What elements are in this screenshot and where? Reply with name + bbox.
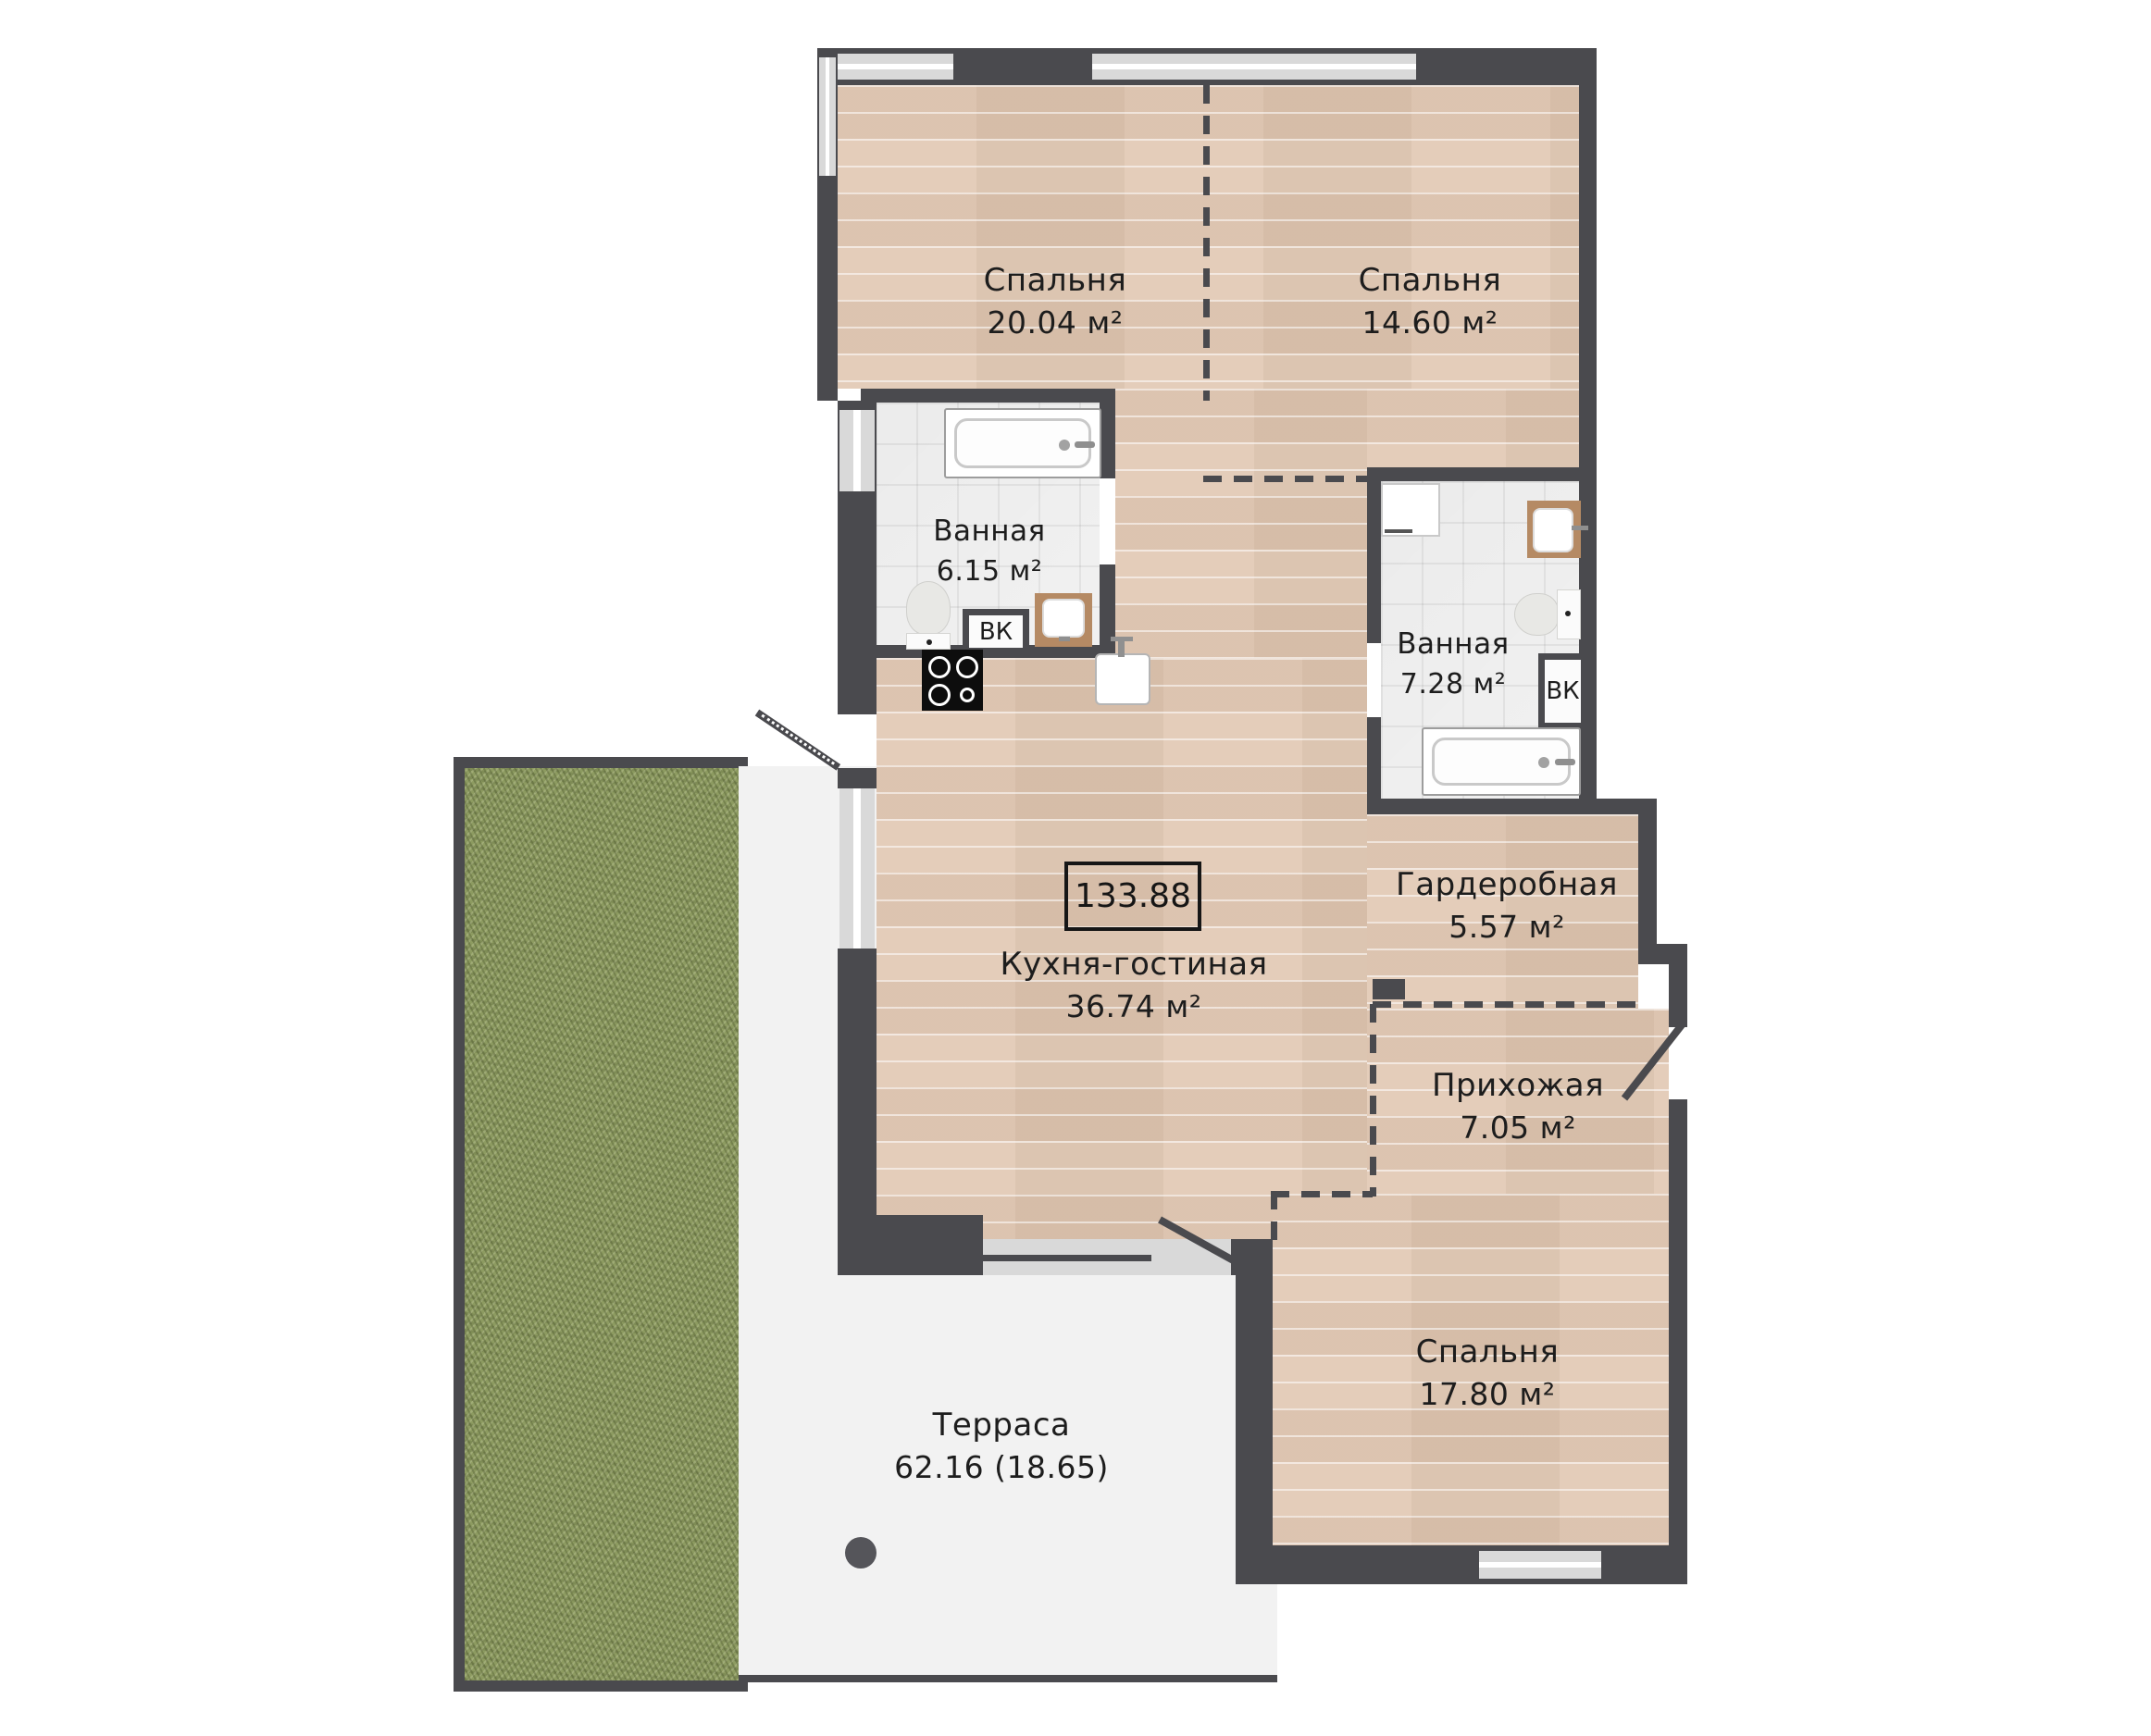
door-leaf-terrace-west <box>755 710 840 771</box>
window-bedroom3-bottom <box>1479 1551 1601 1579</box>
terrace-edge-line <box>739 1675 1277 1682</box>
wall-bathroom1-right-a <box>1100 403 1115 478</box>
room-area: 62.16 (18.65) <box>863 1450 1140 1486</box>
dashed-partition-bedroom2-kitchen <box>1203 476 1367 482</box>
floor-bedroom2-lower <box>1367 389 1579 467</box>
total-area-value: 133.88 <box>1075 877 1191 915</box>
room-area: 7.05 м² <box>1379 1110 1657 1147</box>
grass-border-bottom <box>454 1680 748 1692</box>
window-bedroom1-left <box>819 57 836 176</box>
wall-bedroom3-bottom <box>1236 1545 1687 1584</box>
burner-icon <box>956 656 978 678</box>
burner-icon <box>928 684 951 706</box>
window-kitchen-left <box>839 788 875 949</box>
floor-plan: ВК ВК 133.88 Спальня 20.04 м² Спальня 14 <box>0 0 2151 1736</box>
bathtub-2 <box>1422 727 1581 796</box>
bathtub-2-basin <box>1432 738 1571 786</box>
wall-exterior-right-upper <box>1579 48 1597 814</box>
bathtub-1-basin <box>954 418 1091 468</box>
room-label-bedroom1: Спальня 20.04 м² <box>916 262 1194 341</box>
kitchen-sink-faucet <box>1118 640 1125 657</box>
wall-bathroom2-bottom <box>1367 799 1657 814</box>
bathtub-2-drain <box>1538 757 1549 768</box>
room-label-kitchen-living: Кухня-гостиная 36.74 м² <box>949 946 1319 1025</box>
room-name: Ванная <box>1337 627 1569 662</box>
room-area: 36.74 м² <box>949 989 1319 1025</box>
room-label-bathroom2: Ванная 7.28 м² <box>1337 627 1569 701</box>
stove-hob <box>922 650 983 711</box>
dashed-partition-wardrobe-hallway <box>1373 1001 1638 1008</box>
wall-hallway-right-upper <box>1669 962 1687 1027</box>
wall-exterior-left-kitchen-c <box>838 949 877 1217</box>
room-label-terrace: Терраса 62.16 (18.65) <box>863 1407 1140 1486</box>
room-area: 6.15 м² <box>874 555 1105 588</box>
dashed-partition-kitchen-bedroom3-v <box>1271 1191 1277 1242</box>
bathtub-2-faucet <box>1555 759 1575 765</box>
wall-corner-southwest <box>838 1215 983 1275</box>
room-label-bedroom3: Спальня 17.80 м² <box>1349 1333 1626 1413</box>
toilet-1-bowl <box>906 581 951 635</box>
room-area: 14.60 м² <box>1291 305 1569 341</box>
wall-exterior-left-kitchen-b <box>838 768 877 788</box>
dashed-partition-bedrooms <box>1203 85 1210 401</box>
dashed-partition-kitchen-bedroom3-h <box>1271 1191 1373 1197</box>
vanity-2-faucet <box>1572 526 1588 530</box>
burner-icon <box>928 656 951 678</box>
vanity-2-sink <box>1533 508 1573 552</box>
vanity-1-sink <box>1042 599 1085 638</box>
room-name: Спальня <box>916 262 1194 299</box>
glass-door-frame-line <box>983 1255 1151 1261</box>
utility-shaft-1-label: ВК <box>979 618 1013 646</box>
grass-border-top <box>454 757 748 768</box>
kitchen-sink-faucet-handle <box>1111 637 1133 641</box>
room-label-bathroom1: Ванная 6.15 м² <box>874 515 1105 588</box>
window-bathroom1-left <box>839 410 875 491</box>
dashed-partition-kitchen-hallway <box>1370 1004 1376 1197</box>
toilet-1-button <box>926 639 932 645</box>
terrace-column <box>845 1537 877 1569</box>
wall-hallway-right-lower <box>1669 1099 1687 1545</box>
wall-bathroom1-top <box>861 389 1115 403</box>
window-bedroom2-top <box>1092 54 1416 80</box>
burner-icon <box>960 688 975 702</box>
utility-shaft-1: ВК <box>963 609 1029 648</box>
floor-kitchen-upper <box>1115 389 1367 658</box>
wall-pillar-hallway <box>1373 979 1405 999</box>
washing-machine-detail <box>1385 529 1412 533</box>
room-area: 7.28 м² <box>1337 668 1569 701</box>
total-area-badge: 133.88 <box>1064 862 1201 931</box>
room-name: Спальня <box>1291 262 1569 299</box>
room-area: 20.04 м² <box>916 305 1194 341</box>
room-name: Ванная <box>874 515 1105 549</box>
grass-border-left <box>454 757 465 1692</box>
wall-bathroom2-top <box>1367 467 1597 481</box>
room-name: Гардеробная <box>1368 866 1646 903</box>
room-area: 17.80 м² <box>1349 1377 1626 1413</box>
window-bedroom1-top <box>838 54 953 80</box>
room-label-hallway: Прихожая 7.05 м² <box>1379 1067 1657 1147</box>
grass-lawn <box>465 768 739 1680</box>
room-label-wardrobe: Гардеробная 5.57 м² <box>1368 866 1646 946</box>
wall-bathroom2-left-a <box>1367 467 1381 643</box>
room-area: 5.57 м² <box>1368 910 1646 946</box>
room-name: Спальня <box>1349 1333 1626 1370</box>
room-name: Кухня-гостиная <box>949 946 1319 983</box>
bathtub-1-faucet <box>1075 441 1095 448</box>
room-label-bedroom2: Спальня 14.60 м² <box>1291 262 1569 341</box>
room-name: Терраса <box>863 1407 1140 1444</box>
wall-step-right <box>1638 944 1687 964</box>
room-name: Прихожая <box>1379 1067 1657 1104</box>
toilet-2-button <box>1565 611 1571 616</box>
bathtub-1-drain <box>1059 440 1070 451</box>
door-leaf-dotted-line <box>761 714 835 765</box>
bathtub-1 <box>944 408 1101 478</box>
vanity-1-faucet <box>1059 637 1070 641</box>
wall-bedroom3-left <box>1236 1275 1273 1553</box>
kitchen-sink <box>1095 653 1150 705</box>
